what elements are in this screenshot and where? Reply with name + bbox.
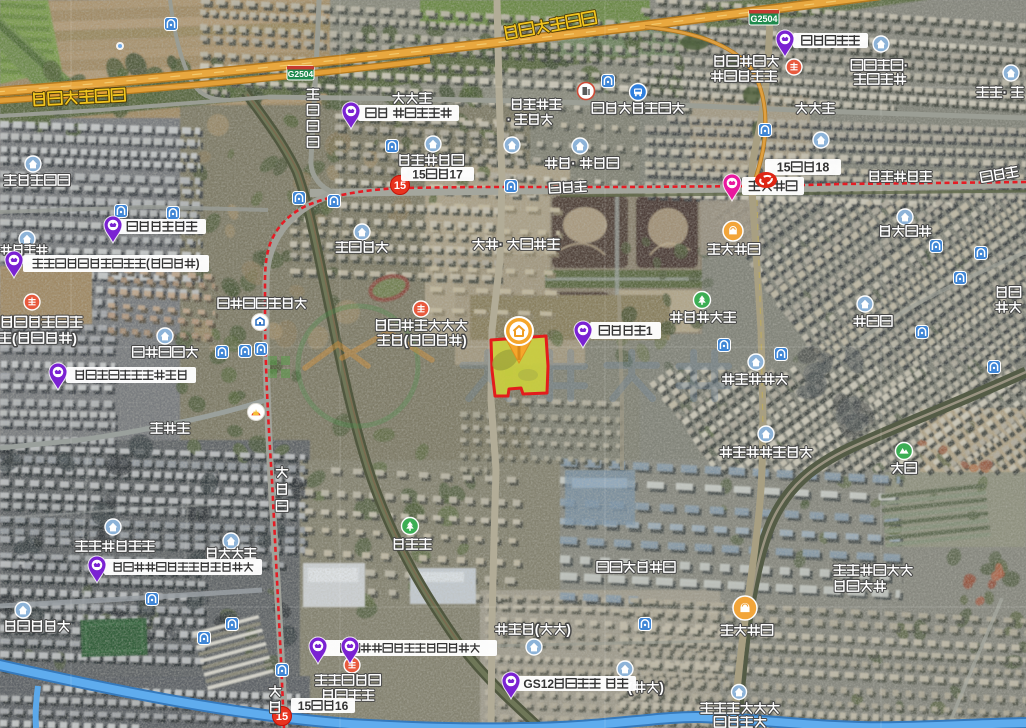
- svg-text:·: ·: [904, 58, 909, 73]
- svg-text:): ): [72, 330, 77, 346]
- svg-text:): ): [196, 259, 200, 271]
- svg-text:(: (: [12, 330, 17, 346]
- svg-text:·: ·: [507, 112, 511, 127]
- svg-text:(: (: [146, 259, 150, 271]
- svg-text:): ): [659, 680, 664, 695]
- svg-text:17: 17: [449, 167, 463, 181]
- svg-text:·: ·: [571, 156, 576, 171]
- svg-text:G2504: G2504: [288, 69, 314, 79]
- svg-text:G2504: G2504: [750, 14, 777, 24]
- svg-text:15: 15: [394, 180, 406, 192]
- svg-text:GS12: GS12: [523, 677, 554, 691]
- svg-text:): ): [462, 333, 467, 348]
- svg-text:18: 18: [815, 161, 829, 175]
- svg-text:1: 1: [646, 324, 653, 338]
- svg-text:15: 15: [412, 167, 426, 181]
- svg-text:·: ·: [499, 237, 504, 252]
- svg-text:15: 15: [777, 161, 791, 175]
- svg-text:): ): [566, 622, 571, 637]
- svg-text:(: (: [404, 333, 409, 348]
- svg-text:16: 16: [335, 699, 349, 713]
- svg-text:(: (: [535, 622, 540, 637]
- svg-text:·: ·: [1003, 85, 1008, 100]
- svg-text:15: 15: [298, 699, 312, 713]
